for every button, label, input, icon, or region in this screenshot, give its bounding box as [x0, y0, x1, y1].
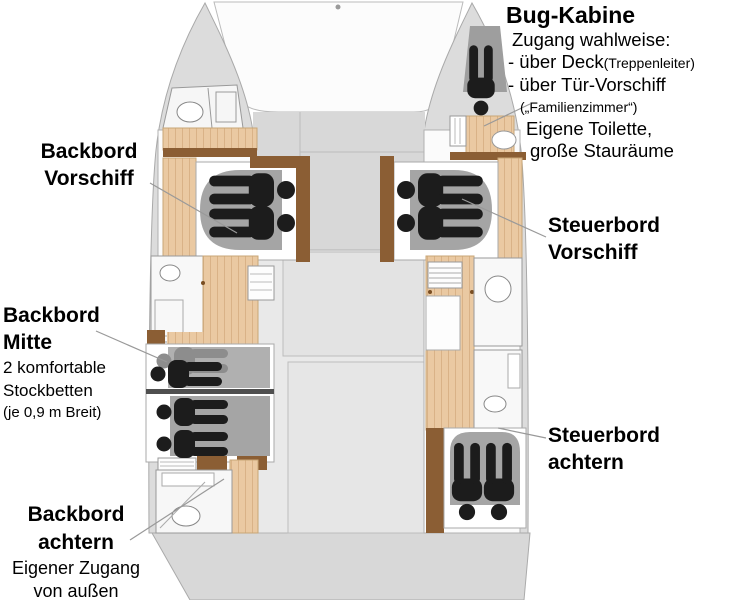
wood-trim	[426, 428, 444, 533]
label-backbord-vorschiff: Backbord Vorschiff	[16, 138, 162, 192]
mast-dot	[336, 5, 341, 10]
label-steuerbord-achtern: Steuerbord achtern	[548, 422, 660, 476]
label-backbord-achtern: Backbord achtern Eigener Zugang von auße…	[0, 501, 152, 603]
cabinet	[158, 458, 196, 471]
wood-trim	[296, 156, 310, 262]
toilet-icon	[172, 506, 200, 526]
cabinet	[426, 296, 460, 350]
wood-floor	[167, 332, 233, 344]
bow-bathroom	[163, 85, 243, 128]
wood-trim	[147, 330, 165, 344]
bug-kabine-line6: große Stauräume	[506, 140, 738, 162]
sink-icon	[160, 265, 180, 281]
bug-kabine-title: Bug-Kabine	[506, 1, 738, 29]
foredeck-trampoline	[214, 2, 463, 112]
bunk-divider	[146, 389, 274, 394]
mid-bathroom-port	[151, 256, 203, 342]
door	[450, 116, 466, 146]
toilet-icon	[177, 102, 203, 122]
aft-bathroom-port	[156, 470, 232, 533]
wood-floor	[163, 158, 196, 262]
bug-kabine-line2: - über Deck(Treppenleiter)	[506, 51, 738, 74]
fitting-dot	[470, 290, 474, 294]
fitting-dot	[201, 281, 205, 285]
salon	[258, 250, 426, 533]
fitting-dot	[428, 290, 432, 294]
mid-bathroom-starboard-aft	[474, 350, 522, 430]
toilet-icon	[484, 396, 506, 412]
stairs	[428, 262, 462, 288]
label-steuerbord-vorschiff: Steuerbord Vorschiff	[548, 212, 660, 266]
wood-trim	[163, 148, 257, 157]
bug-kabine-line1: Zugang wahlweise:	[506, 29, 738, 51]
mid-bathroom-starboard-fwd	[474, 258, 522, 346]
label-backbord-mitte: Backbord Mitte 2 komfortable Stockbetten…	[3, 302, 106, 424]
bug-kabine-line5: Eigene Toilette,	[506, 118, 738, 140]
wood-floor	[230, 460, 258, 533]
label-bug-kabine: Bug-Kabine Zugang wahlweise: - über Deck…	[506, 1, 738, 162]
bug-kabine-line4: („Familienzimmer“)	[506, 96, 738, 118]
wood-floor	[163, 128, 257, 150]
shower-icon	[485, 276, 511, 302]
stern-deck	[152, 533, 530, 600]
wood-trim	[250, 156, 296, 168]
wood-floor	[498, 158, 522, 262]
cabinet	[248, 266, 274, 300]
wood-trim	[380, 156, 394, 262]
bug-kabine-line3: - über Tür-Vorschiff	[506, 74, 738, 96]
wood-trim	[197, 456, 227, 470]
